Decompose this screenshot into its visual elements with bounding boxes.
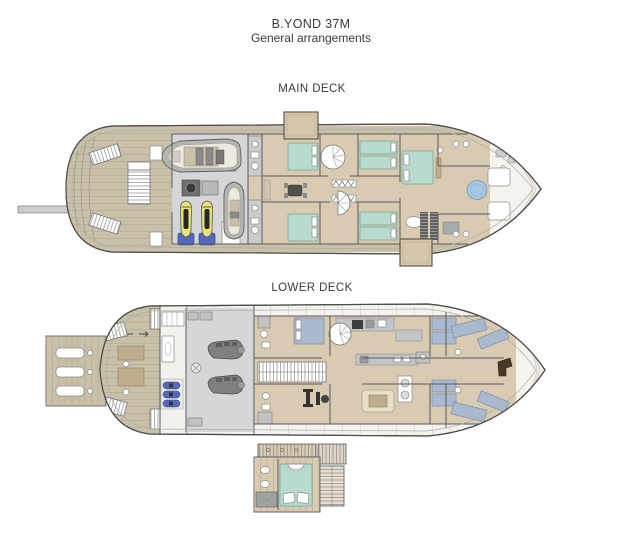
- sink: [455, 349, 461, 355]
- pillow: [391, 143, 396, 152]
- detail-cabin: [254, 457, 320, 512]
- sofa: [264, 180, 270, 200]
- balcony-port: [284, 112, 318, 139]
- chair: [303, 183, 307, 188]
- lounger: [56, 386, 84, 396]
- dive-tanks: [161, 379, 183, 409]
- engine-room: [186, 308, 254, 432]
- crew-stairs: [258, 362, 326, 382]
- sink: [252, 163, 259, 170]
- ga-drawing: B.YOND 37M General arrangements MAIN DEC…: [0, 0, 625, 533]
- shower: [258, 412, 272, 424]
- balcony-starboard: [400, 239, 432, 266]
- oven: [366, 320, 374, 328]
- pillow: [391, 158, 396, 167]
- grill-unit: [182, 180, 218, 196]
- aft-center-stairs: [128, 162, 150, 204]
- bidet: [261, 481, 270, 488]
- passerelle: [18, 206, 68, 213]
- sink: [394, 356, 401, 362]
- lower-deck-interior: [91, 306, 540, 434]
- main-deck-label: MAIN DECK: [278, 83, 346, 95]
- pillow: [312, 228, 317, 237]
- pillow: [283, 492, 295, 504]
- crew-mess: [362, 390, 394, 412]
- storage-room: [160, 306, 186, 434]
- page-subtitle: General arrangements: [251, 31, 371, 45]
- toilet: [262, 342, 270, 348]
- washer: [401, 379, 409, 387]
- bathtub: [467, 181, 487, 200]
- pillow: [312, 146, 317, 155]
- engine-starboard: [208, 375, 245, 394]
- lower-deck-plan: [46, 304, 545, 436]
- toilet: [262, 404, 270, 410]
- sink: [403, 356, 410, 362]
- bunk-bed: [432, 332, 456, 344]
- side-table: [88, 370, 93, 375]
- laundry: [398, 376, 412, 402]
- cooktop: [352, 320, 363, 329]
- main-deck-interior: [60, 126, 536, 254]
- toilet: [251, 218, 259, 224]
- sink: [252, 205, 258, 211]
- pillow: [312, 217, 317, 226]
- beach-platform: [46, 336, 106, 406]
- page-title: B.YOND 37M: [272, 17, 351, 31]
- main-deck-plan: [18, 112, 541, 266]
- pillow: [312, 157, 317, 166]
- sink: [252, 141, 258, 147]
- equipment: [188, 418, 202, 426]
- sink: [261, 331, 268, 338]
- bunk-bed: [432, 380, 456, 392]
- lounger: [56, 348, 84, 358]
- dryer: [401, 391, 409, 399]
- equipment: [200, 312, 212, 320]
- equipment: [188, 312, 198, 320]
- rib-tender: [224, 182, 244, 239]
- toilet: [251, 152, 259, 158]
- chair: [303, 193, 307, 198]
- sink: [421, 355, 426, 360]
- ottoman: [406, 217, 422, 228]
- lower-deck-label: LOWER DECK: [271, 282, 352, 294]
- pillow: [404, 154, 409, 165]
- pillow: [296, 331, 301, 340]
- bow-seat: [488, 168, 510, 186]
- pillow: [391, 214, 396, 223]
- toilet: [261, 467, 270, 474]
- deck-box: [150, 232, 162, 246]
- sub-deck-plan: [254, 444, 346, 512]
- bunk-bed: [432, 394, 456, 406]
- side-table: [88, 351, 93, 356]
- detail-wardrobe: [258, 444, 316, 457]
- sink: [263, 393, 270, 400]
- spiral-staircase-upper: [321, 145, 345, 169]
- cabinet: [162, 336, 174, 362]
- bar-cabinet: [118, 346, 144, 360]
- sink: [455, 387, 461, 393]
- detail-upper-louvre: [318, 444, 346, 464]
- mess-table: [369, 395, 387, 407]
- table: [288, 185, 302, 196]
- shower: [258, 316, 270, 328]
- weight-bar: [306, 390, 310, 406]
- weight-bar: [316, 392, 320, 405]
- ga-sheet: B.YOND 37M General arrangements MAIN DEC…: [0, 0, 625, 533]
- lounger: [56, 367, 84, 377]
- chair: [284, 183, 288, 188]
- sink: [463, 141, 469, 147]
- counter: [396, 330, 422, 341]
- sink: [453, 141, 459, 147]
- pillow: [296, 320, 301, 329]
- detail-stairs: [320, 466, 344, 506]
- side-table: [88, 389, 93, 394]
- kettlebell: [321, 395, 329, 403]
- sink: [252, 227, 259, 234]
- tender-boat: [162, 139, 241, 172]
- cabinet: [118, 368, 144, 386]
- lockers: [162, 312, 184, 326]
- spiral-staircase-lower: [329, 323, 351, 345]
- sink: [453, 231, 459, 237]
- pillow: [297, 492, 309, 504]
- pillow: [391, 229, 396, 238]
- sink: [378, 320, 386, 327]
- sink: [463, 231, 469, 237]
- engine-port: [208, 340, 245, 359]
- deck-box: [150, 146, 162, 160]
- pillow: [404, 170, 409, 181]
- chair: [284, 193, 288, 198]
